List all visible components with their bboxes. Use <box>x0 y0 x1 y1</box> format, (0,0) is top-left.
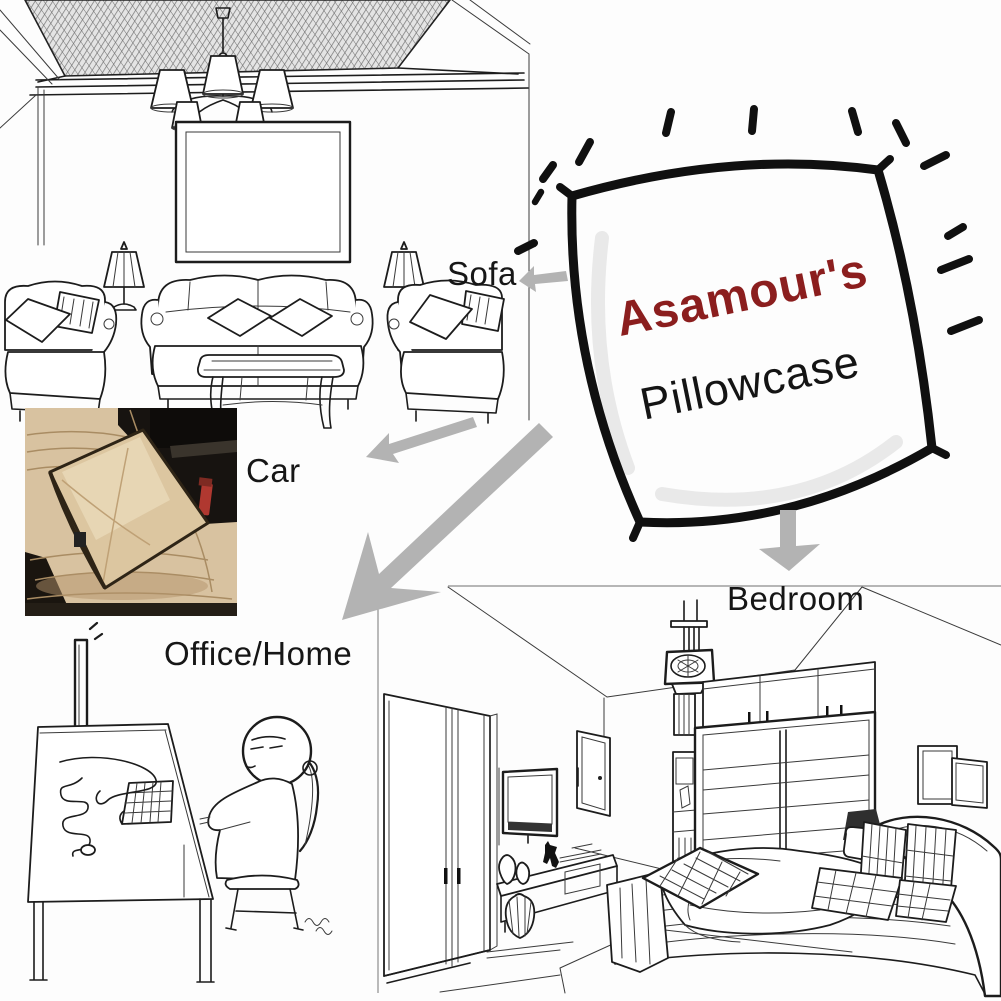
closet-sketch <box>695 662 875 884</box>
wall-frames-sketch <box>918 746 987 808</box>
pillowcase-usage-diagram: Sofa Car Office/Home Bedroom Asamour's P… <box>0 0 1001 1001</box>
chandelier-sketch <box>151 8 293 202</box>
car-seat-photo <box>0 0 1001 1001</box>
coffee-table-sketch <box>198 355 344 428</box>
desk-sketch <box>28 623 214 982</box>
door-sketch <box>577 731 610 816</box>
car-label: Car <box>246 454 301 489</box>
armchair-right <box>387 281 504 424</box>
bedroom-label: Bedroom <box>727 582 864 617</box>
bedroom-arrow-icon <box>759 510 820 571</box>
car-arrow-icon <box>366 417 477 463</box>
bedroom-sketch <box>0 0 1001 1001</box>
living-room-sketch <box>0 0 1001 1001</box>
sofa-label: Sofa <box>447 257 517 292</box>
shelf-column-sketch <box>673 752 696 870</box>
cable-scribble <box>60 757 156 856</box>
table-lamp-left <box>104 242 144 310</box>
headboard-sketch <box>872 817 1001 996</box>
tv-sketch <box>499 768 557 845</box>
table-lamp-right <box>384 242 424 310</box>
hanging-unit-sketch <box>665 600 714 735</box>
bedside-lamp-sketch <box>843 809 883 857</box>
pillow-sketch <box>0 0 1001 1001</box>
office-home-sketch <box>0 0 1001 1001</box>
bed-sketch <box>607 848 985 994</box>
pillow-product-text: Pillowcase <box>598 328 902 439</box>
ceiling-texture <box>25 0 450 76</box>
person-cartoon <box>200 717 332 935</box>
keyboard-sketch <box>120 781 173 824</box>
bed-pillows-sketch <box>643 822 956 922</box>
sofa-arrow-icon <box>519 266 568 292</box>
car-pillow <box>50 430 208 588</box>
arrows-overlay <box>0 0 1001 1001</box>
office-arrow-icon <box>342 423 553 620</box>
wardrobe-sketch <box>384 694 497 983</box>
sofa-sketch <box>141 276 372 410</box>
rug-sketch <box>560 918 852 993</box>
picture-frame-sketch <box>176 122 350 262</box>
tv-stand-sketch <box>487 841 617 958</box>
office-home-label: Office/Home <box>164 637 352 672</box>
armchair-left <box>5 282 116 424</box>
